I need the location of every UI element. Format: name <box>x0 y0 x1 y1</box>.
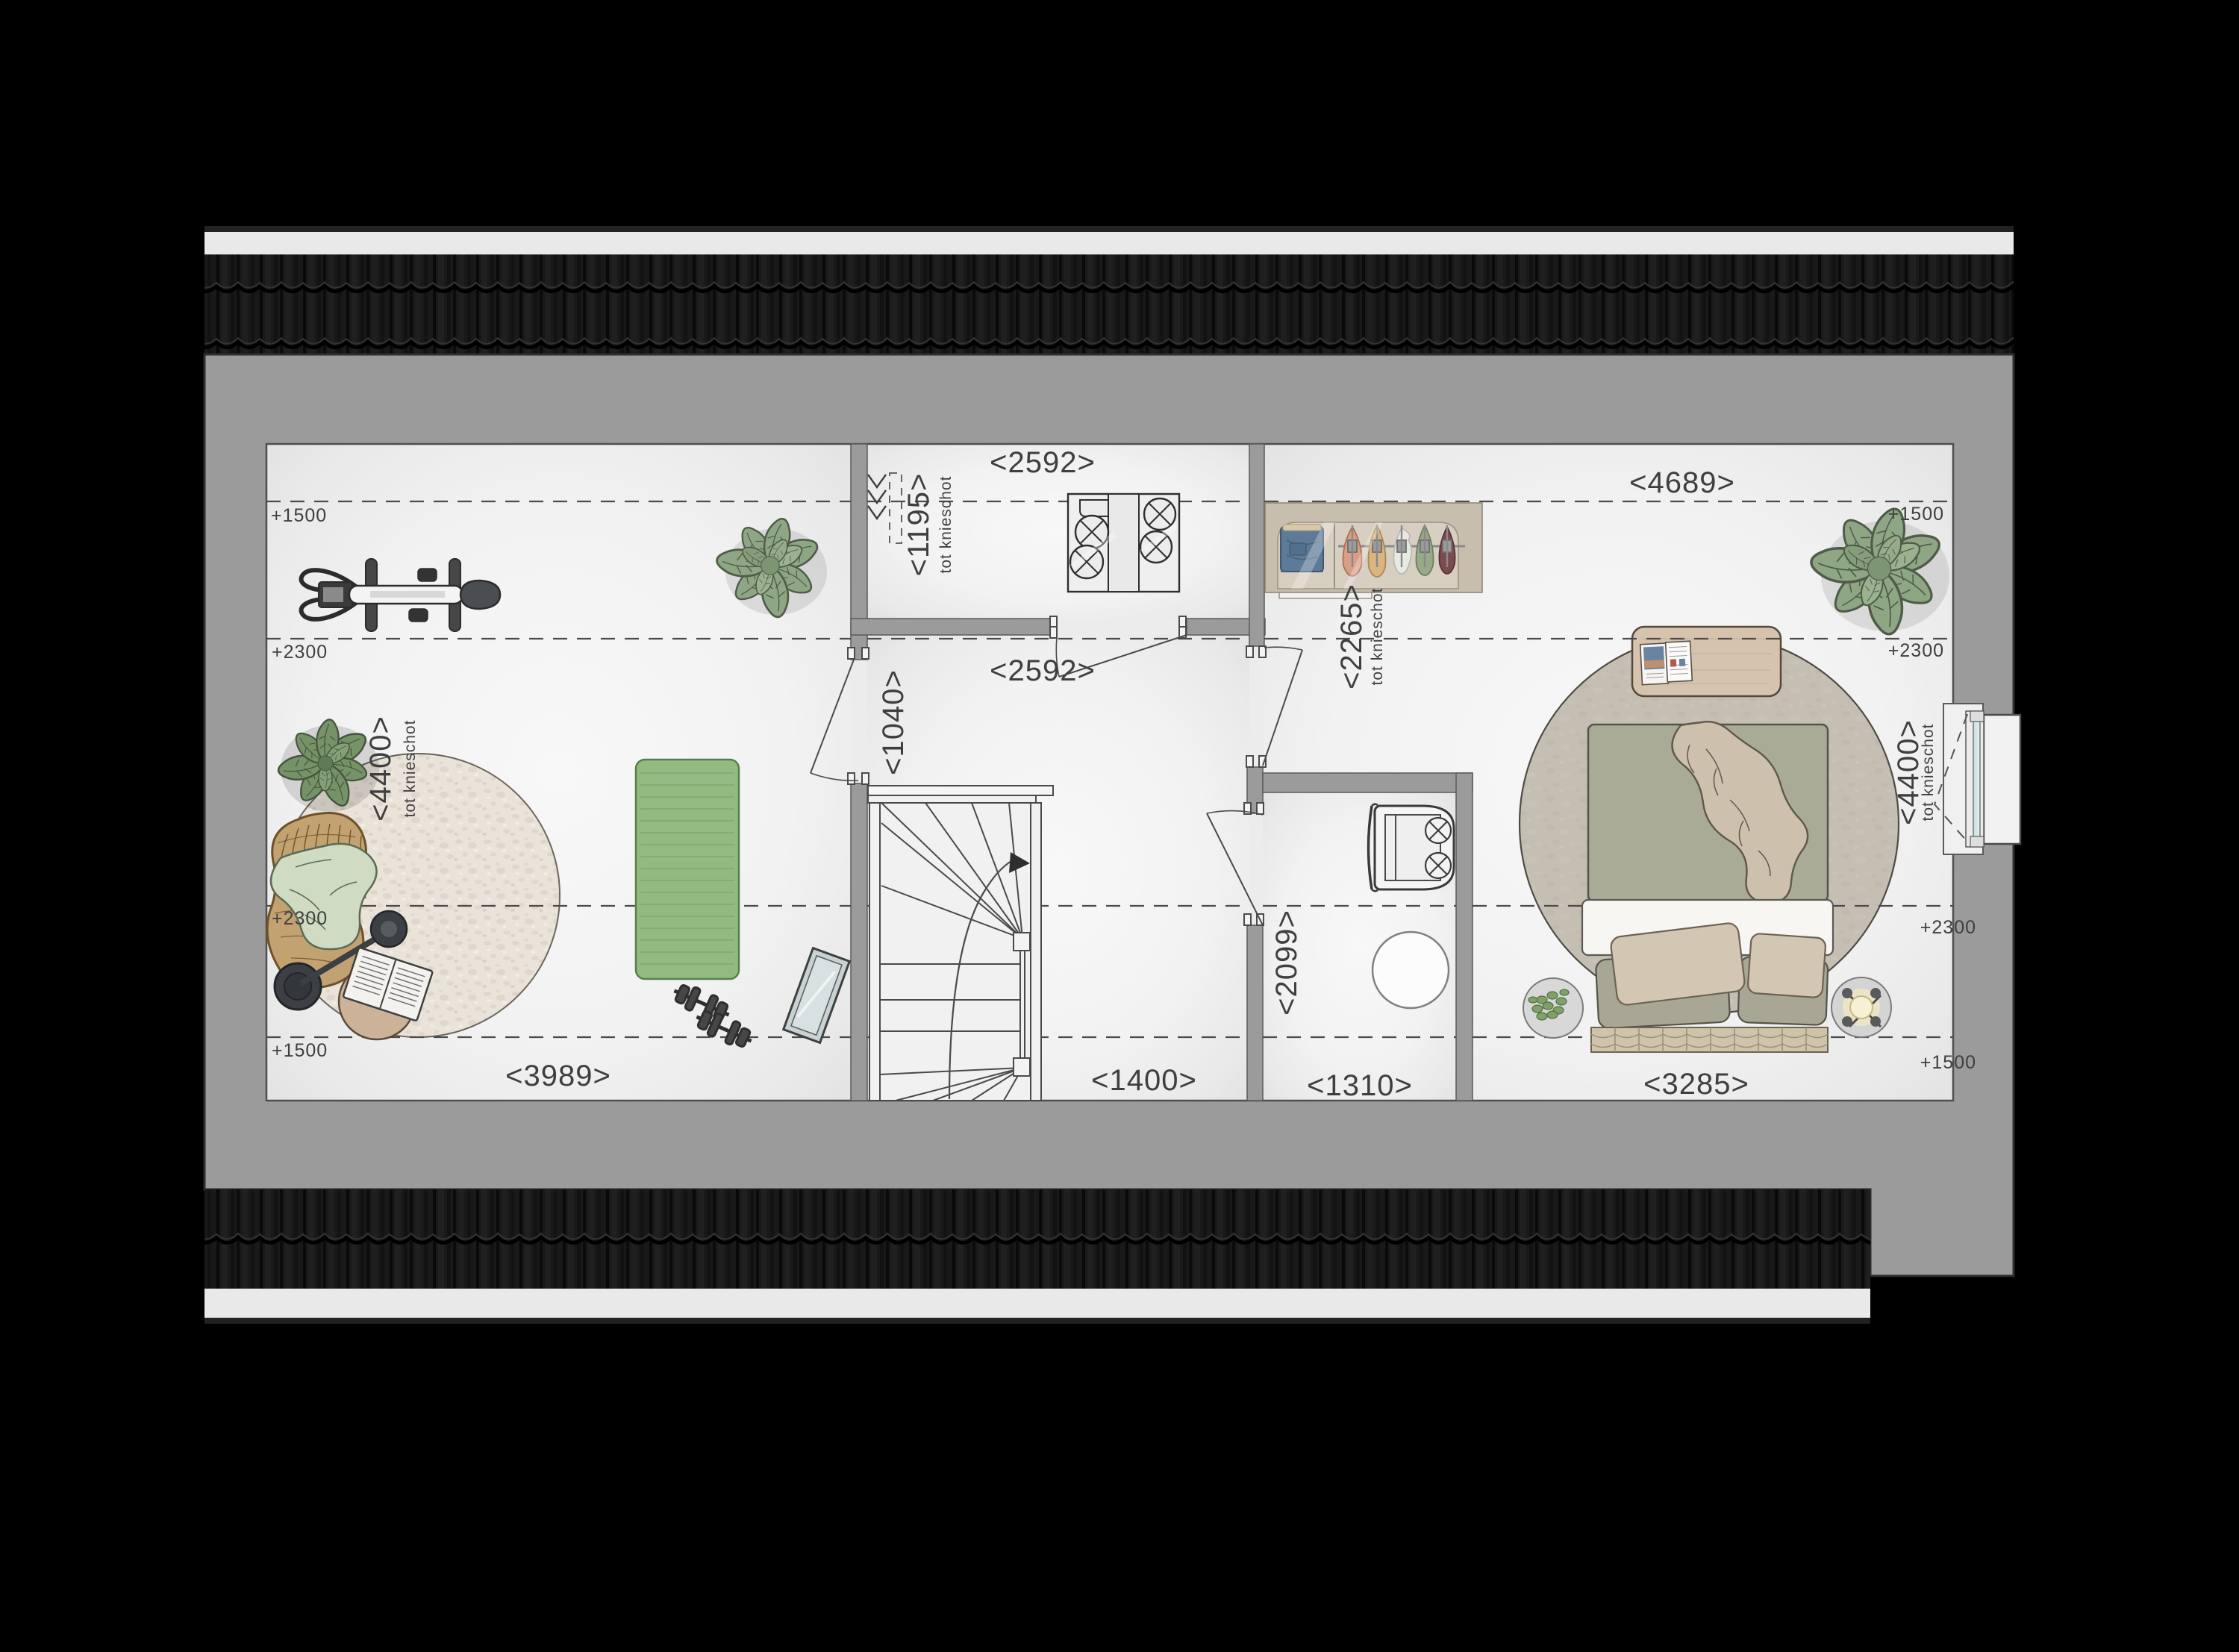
svg-text:+2300: +2300 <box>1888 640 1944 661</box>
svg-text:<1310>: <1310> <box>1307 1069 1413 1102</box>
svg-text:<1195>: <1195> <box>902 473 935 577</box>
svg-text:<2592>: <2592> <box>990 654 1096 687</box>
svg-text:+1500: +1500 <box>1920 1052 1976 1073</box>
svg-text:<1400>: <1400> <box>1091 1064 1197 1097</box>
svg-text:<3989>: <3989> <box>505 1060 611 1092</box>
svg-text:<2265>: <2265> <box>1335 583 1368 689</box>
svg-text:<2592>: <2592> <box>990 446 1096 479</box>
svg-text:<4689>: <4689> <box>1629 466 1735 499</box>
svg-text:tot knieschot: tot knieschot <box>937 476 955 574</box>
svg-text:+1500: +1500 <box>1888 504 1944 525</box>
svg-text:+1500: +1500 <box>271 505 327 526</box>
svg-text:+2300: +2300 <box>272 908 328 929</box>
svg-text:+1500: +1500 <box>272 1040 328 1061</box>
svg-text:<1040>: <1040> <box>877 669 910 775</box>
svg-text:<4400>: <4400> <box>364 716 397 822</box>
svg-text:tot knieschot: tot knieschot <box>1920 724 1937 822</box>
svg-text:+2300: +2300 <box>1920 917 1976 938</box>
svg-text:<3285>: <3285> <box>1643 1068 1749 1101</box>
svg-text:+2300: +2300 <box>272 642 328 663</box>
svg-text:<2099>: <2099> <box>1270 910 1303 1016</box>
svg-text:tot knieschot: tot knieschot <box>402 720 419 818</box>
svg-text:tot knieschot: tot knieschot <box>1369 588 1386 686</box>
